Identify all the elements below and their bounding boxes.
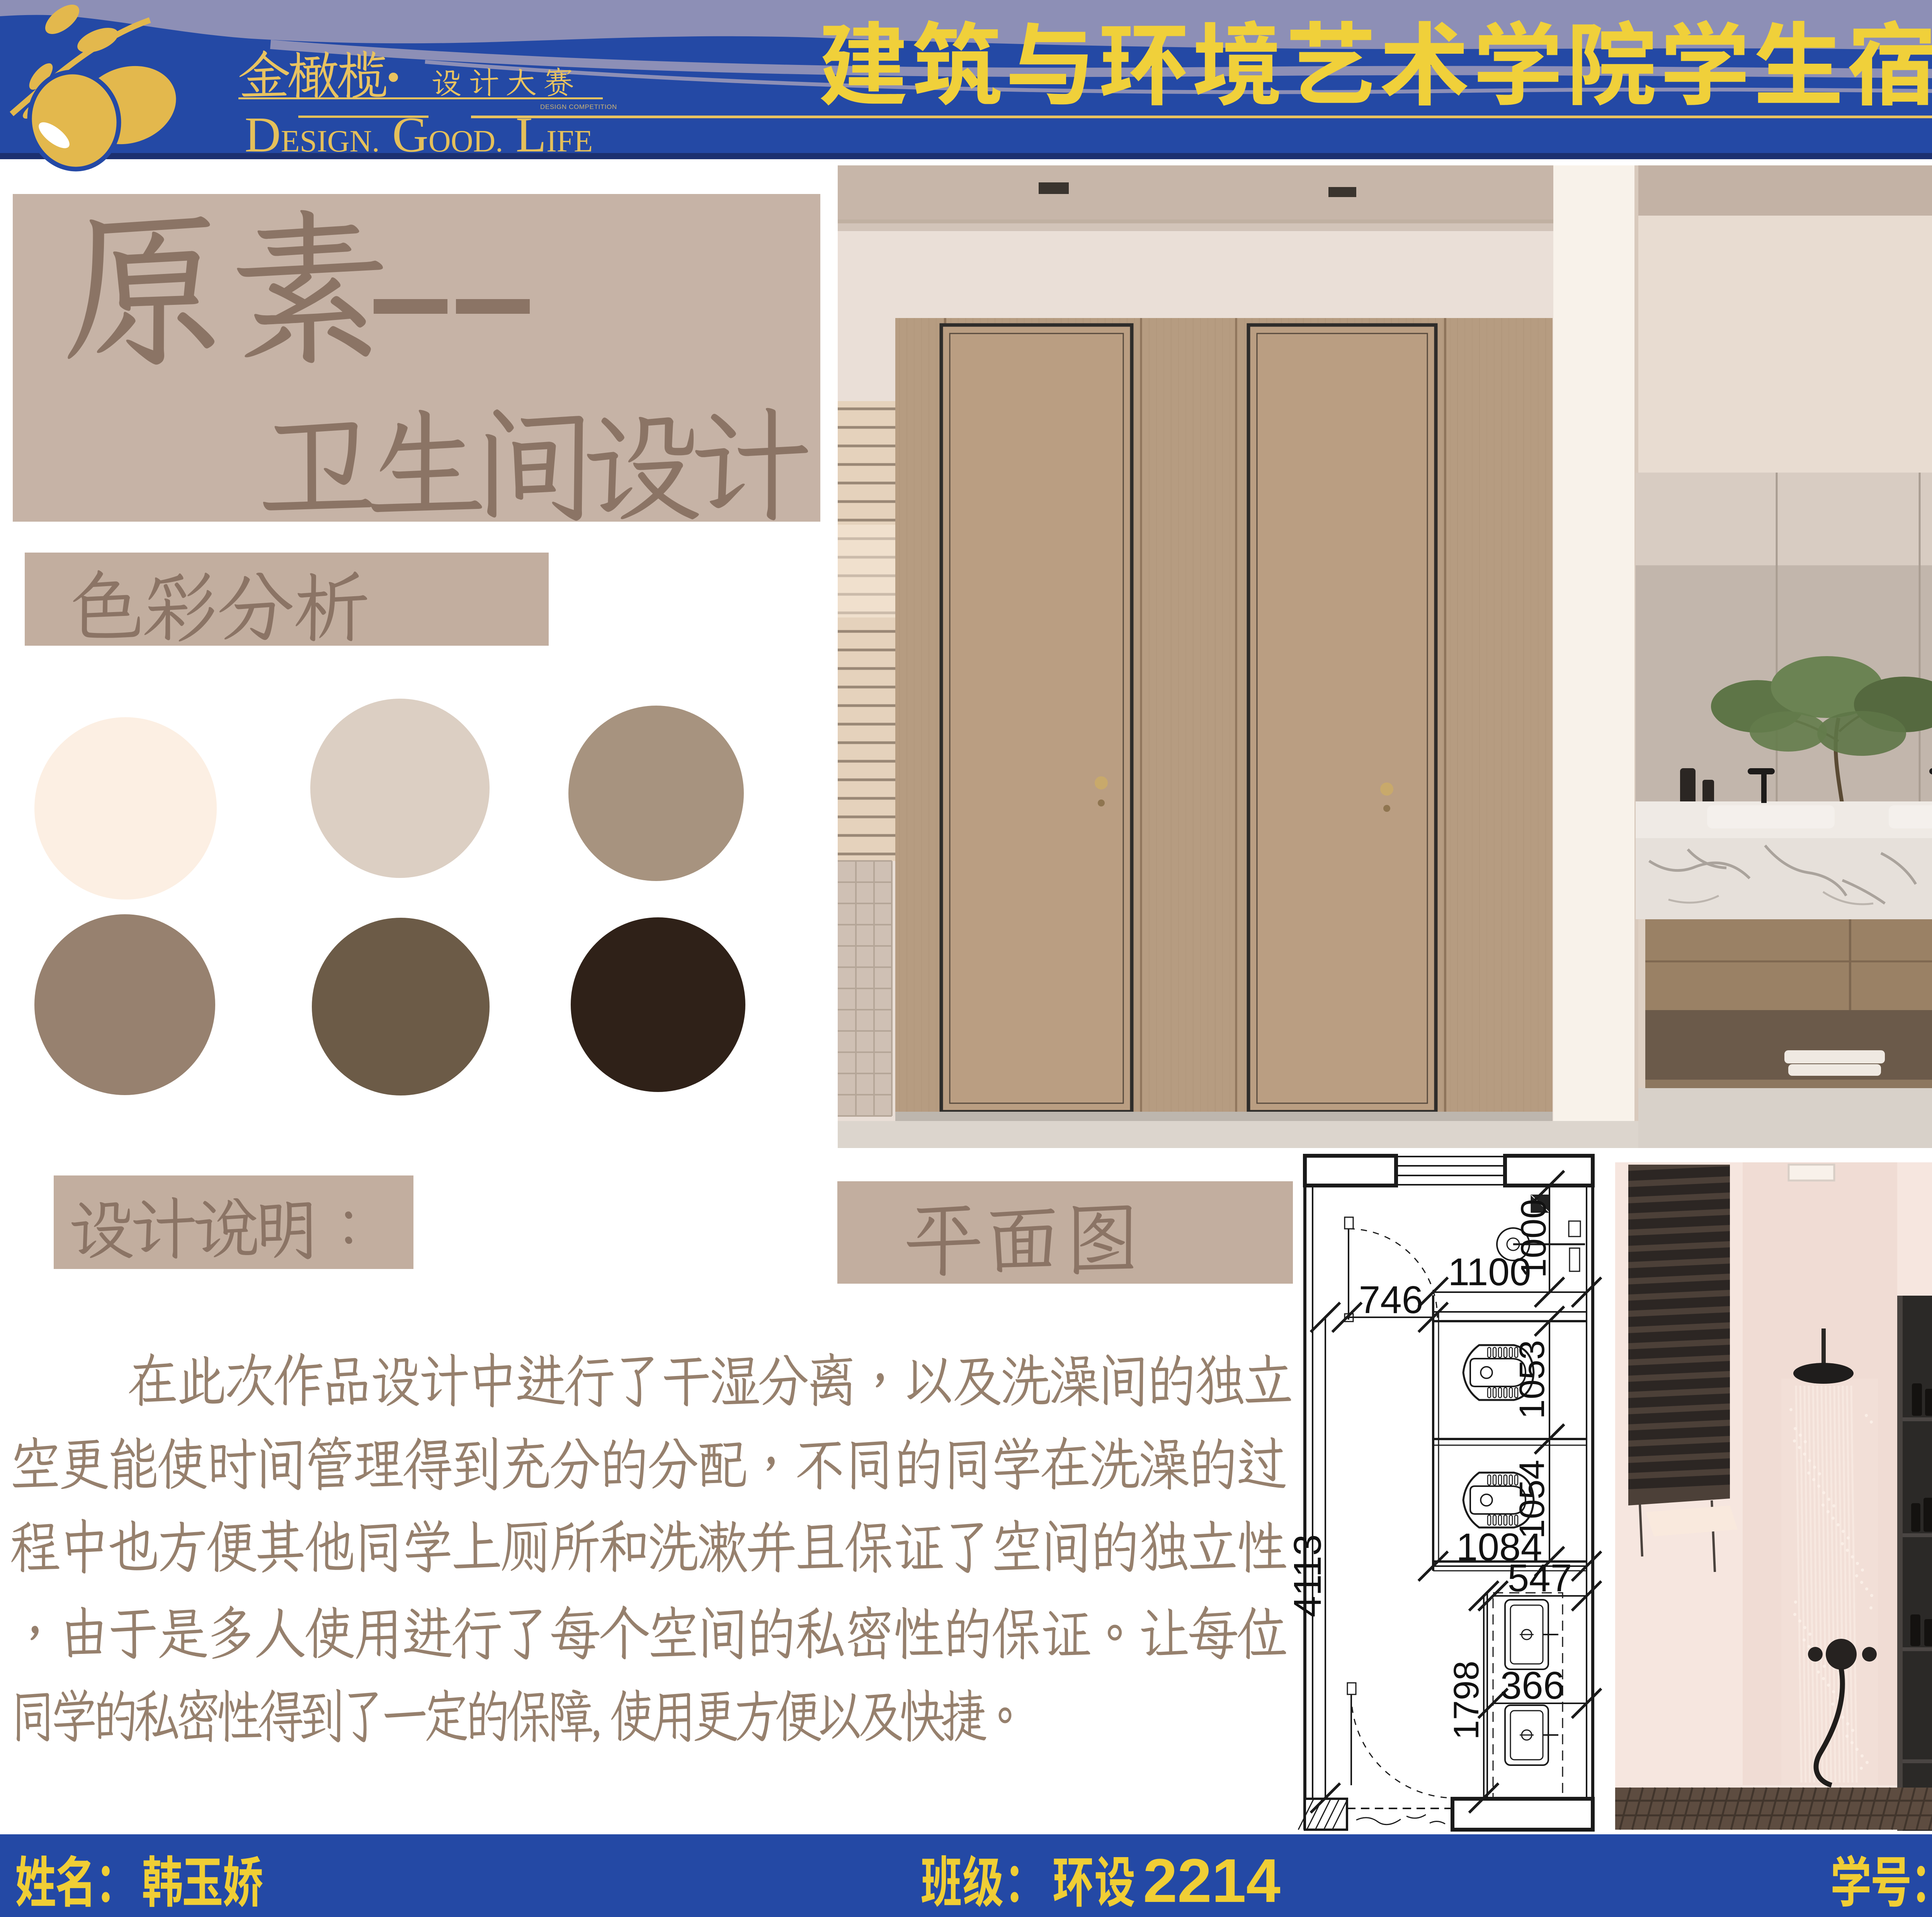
svg-text:1000: 1000 bbox=[1514, 1199, 1553, 1278]
svg-text:746: 746 bbox=[1359, 1278, 1423, 1322]
svg-text:1053: 1053 bbox=[1512, 1340, 1552, 1419]
svg-text:1798: 1798 bbox=[1447, 1661, 1486, 1740]
svg-text:DESIGN COMPETITION: DESIGN COMPETITION bbox=[540, 103, 617, 111]
svg-text:4113: 4113 bbox=[1286, 1534, 1329, 1617]
svg-text:2214: 2214 bbox=[1143, 1846, 1281, 1915]
svg-text:547: 547 bbox=[1508, 1556, 1572, 1600]
svg-text:366: 366 bbox=[1500, 1664, 1565, 1707]
